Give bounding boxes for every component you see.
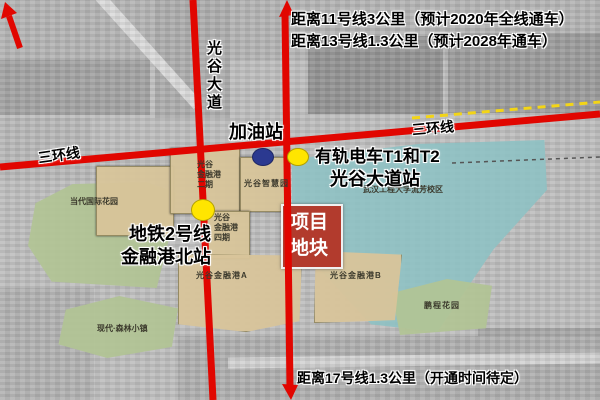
note-line17: 距离17号线1.3公里（开通时间待定） [297, 368, 528, 388]
arrow-down-icon [282, 384, 298, 400]
zone-label-wisdom-park: 光谷智慧园 [244, 179, 289, 189]
gas-station-label: 加油站 [229, 118, 283, 144]
boundary-dashed-line [452, 157, 600, 163]
zone-label-fpA: 光谷金融港A [196, 271, 248, 281]
note-line13: 距离13号线1.3公里（预计2028年通车） [291, 30, 557, 51]
tram-station-marker [287, 148, 309, 166]
zone-label-pengcheng: 鹏程花园 [424, 301, 460, 311]
guanggu-avenue-label: 光谷大道 [203, 40, 224, 112]
corner-road-line [9, 16, 20, 48]
tram-station-label-line1: 有轨电车T1和T2 [315, 142, 440, 167]
ring-road-label-right: 三环线 [411, 116, 455, 140]
zone-label-dangdai: 当代国际花园 [70, 197, 118, 207]
zone-label-forest-town: 现代·森林小镇 [97, 324, 148, 334]
note-line11: 距离11号线3公里（预计2020年全线通车） [291, 8, 574, 29]
zone-label-fp2: 光谷 金融港 二期 [197, 160, 221, 190]
planned-road-line [285, 14, 290, 388]
metro-station-label-line2: 金融港北站 [121, 243, 211, 269]
gas-station-marker [252, 148, 274, 166]
tram-station-label-line2: 光谷大道站 [330, 165, 420, 191]
zone-label-fpB: 光谷金融港B [330, 271, 382, 281]
metro-station-marker [191, 199, 215, 221]
map-canvas: 项目 地块 当代国际花园 现代·森林小镇 武汉工程大学流芳校区 鹏程花园 光谷 … [0, 0, 600, 400]
zone-label-fp4: 光谷 金融港 四期 [214, 213, 238, 243]
